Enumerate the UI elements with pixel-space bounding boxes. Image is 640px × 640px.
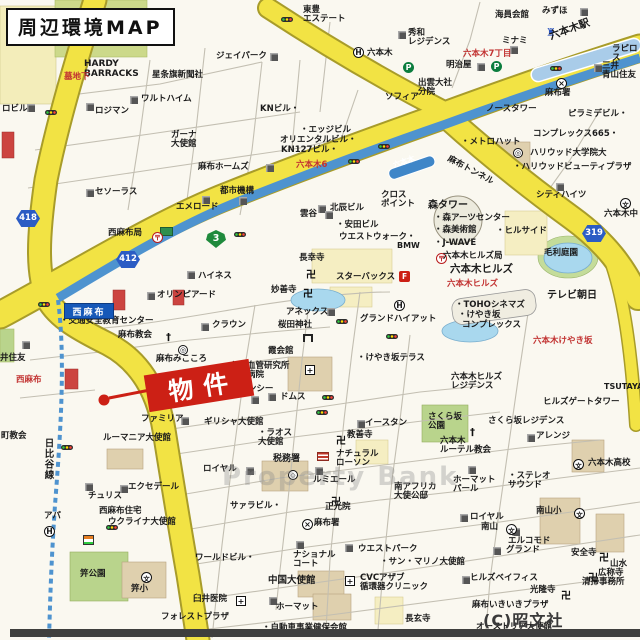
map-label: ・ヒルサイド: [496, 227, 547, 236]
map-label: 清掃事務所: [582, 578, 625, 587]
map-label: ・ステレオ サウンド: [508, 472, 551, 491]
map-label: ・ラオス 大使館: [258, 429, 292, 448]
map-label: 笄公園: [80, 570, 106, 579]
map-label: HARDY BARRACKS: [84, 60, 139, 80]
map-label: オリエンタルビル・: [280, 136, 357, 145]
map-label: ・けやき坂: [458, 311, 501, 320]
map-label: ホーマット: [276, 603, 319, 612]
map-label: ・けやき坂テラス: [357, 354, 425, 363]
map-label: ロビル: [2, 105, 28, 114]
map-label: ドムス: [280, 393, 306, 402]
map-label: ワールドビル・: [195, 554, 255, 563]
page-title: 周辺環境MAP: [6, 8, 175, 46]
map-label: ロイヤル: [470, 513, 504, 522]
map-label: 六本木: [392, 155, 416, 170]
map-label: ・安田ビル: [336, 221, 379, 230]
map-label: ジェイパーク: [216, 52, 267, 61]
map-label: テレビ朝日: [547, 290, 597, 301]
map-label: 長幸寺: [299, 254, 325, 263]
map-label: 正光院: [325, 503, 351, 512]
map-label: ラピロス: [612, 45, 640, 64]
map-label: ナショナル コート: [293, 551, 336, 570]
copyright-label: (C)昭文社: [483, 607, 563, 631]
map-label: ハイネス: [198, 272, 232, 281]
map-label: ヒルズゲートタワー: [543, 398, 620, 407]
map-label: 六本木6: [296, 161, 327, 170]
map-label: クラウン: [212, 321, 246, 330]
map-label: 東豊 エステート: [303, 6, 346, 25]
map-label: ロジマン: [95, 107, 129, 116]
map-label: 長玄寺: [405, 615, 431, 624]
labels-layer: HARDY BARRACKS星条旗新聞社墓地下ジェイパーク東豊 エステート秀和 …: [0, 0, 640, 640]
map-label: グランド: [506, 546, 540, 555]
map-label: グランドハイアット: [360, 315, 436, 324]
map-label: 妙善寺: [271, 286, 297, 295]
map-label: ガーナ 大使館: [171, 131, 197, 150]
map-label: チュリス: [88, 492, 122, 501]
map-label: 麻布署: [545, 89, 571, 98]
map-label: 六本木駅: [548, 18, 591, 43]
map-label: 六本木けやき坂: [533, 337, 593, 346]
map-label: 六本木 ルーテル教会: [440, 437, 491, 456]
map-label: 六本木7丁目: [463, 50, 511, 59]
map-label: ピラミデビル・: [568, 110, 628, 119]
map-label: ギリシャ大使館: [204, 418, 264, 427]
map-label: 六本木ヒルズ レジデンス: [451, 373, 502, 392]
map-label: ・J-WAVE: [434, 239, 476, 248]
map-label: 秀和 レジデンス: [408, 29, 450, 48]
map-label: 西麻布住宅: [99, 507, 142, 516]
map-label: 海員会館: [495, 11, 529, 20]
map-label: ルーマニア大使館: [103, 434, 171, 443]
map-label: ・森アーツセンター: [434, 214, 510, 223]
map-label: 出雲大社 分院: [418, 79, 452, 98]
map-label: オリンピアード: [157, 291, 216, 300]
map-label: ・森美術館: [434, 226, 477, 235]
map-label: ワルトハイム: [141, 95, 192, 104]
map-label: 六本木中: [604, 210, 638, 219]
map-label: ホーマット パール: [453, 476, 496, 495]
map-label: コンプレックス665・: [533, 130, 618, 139]
map-label: ファミリア: [141, 415, 184, 424]
map-label: 桜田神社: [278, 321, 312, 330]
map-label: ・サン・マリノ大使館: [380, 558, 465, 567]
map-label: KN127ビル・: [281, 146, 338, 155]
map-label: 日比谷線: [42, 438, 52, 480]
map-label: サァラビル・: [230, 502, 281, 511]
nishiazabu-sign: 西麻布: [64, 303, 114, 319]
map-label: アレンジ: [536, 432, 570, 441]
map-label: BMW: [397, 242, 420, 251]
map-label: 六本木ヒルズ: [447, 280, 498, 289]
map-label: 麻布ホームズ: [198, 163, 249, 172]
map-label: 森タワー: [428, 200, 468, 211]
map-container: PPHHH××文文文文文+++卍卍卍卍卍卍卍††♜F◎◎〒〒◇ 34124183…: [0, 0, 640, 640]
map-label: ノースタワー: [486, 105, 537, 114]
map-label: さくら坂 公園: [428, 413, 462, 432]
map-label: 教善寺: [347, 431, 373, 440]
map-label: 南山: [481, 523, 498, 532]
map-label: ウクライナ大使館: [108, 518, 176, 527]
map-label: 笄小: [131, 585, 148, 594]
map-label: 六本木高校: [588, 459, 631, 468]
map-label: イースタン: [365, 419, 407, 428]
map-label: 臼井医院: [193, 595, 227, 604]
map-label: ソフィア: [385, 93, 419, 102]
map-label: 星条旗新聞社: [152, 71, 203, 80]
map-label: エクセデール: [128, 483, 179, 492]
map-label: 麻布署: [314, 519, 340, 528]
map-label: TSUTAYA: [604, 383, 640, 392]
map-label: フォレストプラザ: [161, 613, 229, 622]
map-label: 都市機構: [220, 187, 254, 196]
map-label: 西麻布局: [108, 229, 142, 238]
map-label: 六本木ヒルズ: [450, 264, 513, 276]
map-label: ウエストパーク: [358, 545, 418, 554]
map-label: 霞会館: [268, 347, 294, 356]
map-edge-shadow: [10, 629, 640, 637]
map-label: 雲谷: [300, 210, 317, 219]
map-label: 麻布教会: [118, 331, 152, 340]
map-label: ・TOHOシネマズ: [455, 301, 525, 310]
map-label: スターバックス: [336, 273, 395, 282]
map-label: 町教会: [1, 432, 27, 441]
map-label: クロス ポイント: [381, 191, 415, 210]
map-label: アネックス: [286, 308, 328, 317]
map-label: CVCアザブ 循環器クリニック: [360, 574, 428, 593]
map-label: みずほ: [542, 7, 568, 16]
map-label: ・メトロハット: [461, 138, 521, 147]
map-label: 三井 青山住友: [602, 62, 636, 81]
map-label: 井住友: [0, 354, 26, 363]
map-label: シティハイツ: [536, 191, 586, 200]
map-label: エメロード: [176, 203, 219, 212]
map-label: アパ: [44, 512, 61, 521]
map-label: 明治屋: [446, 61, 472, 70]
map-label: 麻布トンネル: [446, 155, 495, 187]
map-label: ヒルズベイフィス: [470, 574, 538, 583]
watermark: Property Bank: [222, 462, 458, 492]
map-label: 南山小: [536, 507, 562, 516]
map-label: セソーラス: [95, 188, 137, 197]
map-label: 六本木: [367, 49, 393, 58]
map-label: KNビル・: [260, 105, 299, 114]
map-label: 六本木ヒルズ局: [443, 252, 503, 261]
map-label: 中国大使館: [268, 576, 316, 586]
map-label: ・エッジビル: [300, 126, 351, 135]
map-label: 北辰ビル: [330, 204, 364, 213]
map-label: コンプレックス: [462, 321, 521, 330]
map-label: 光隆寺: [530, 586, 556, 595]
map-label: ハリウッド大学院大: [530, 149, 607, 158]
map-label: ・ハリウッドビューティプラザ: [513, 163, 632, 172]
map-label: 毛利庭園: [544, 249, 578, 258]
map-label: 墓地下: [64, 73, 90, 82]
map-label: 麻布みこころ: [156, 355, 207, 364]
map-label: ミナミ: [502, 37, 528, 46]
map-label: さくら坂レジデンス: [488, 417, 564, 426]
map-label: 西麻布: [16, 376, 42, 385]
map-label: 安全寺: [571, 549, 597, 558]
